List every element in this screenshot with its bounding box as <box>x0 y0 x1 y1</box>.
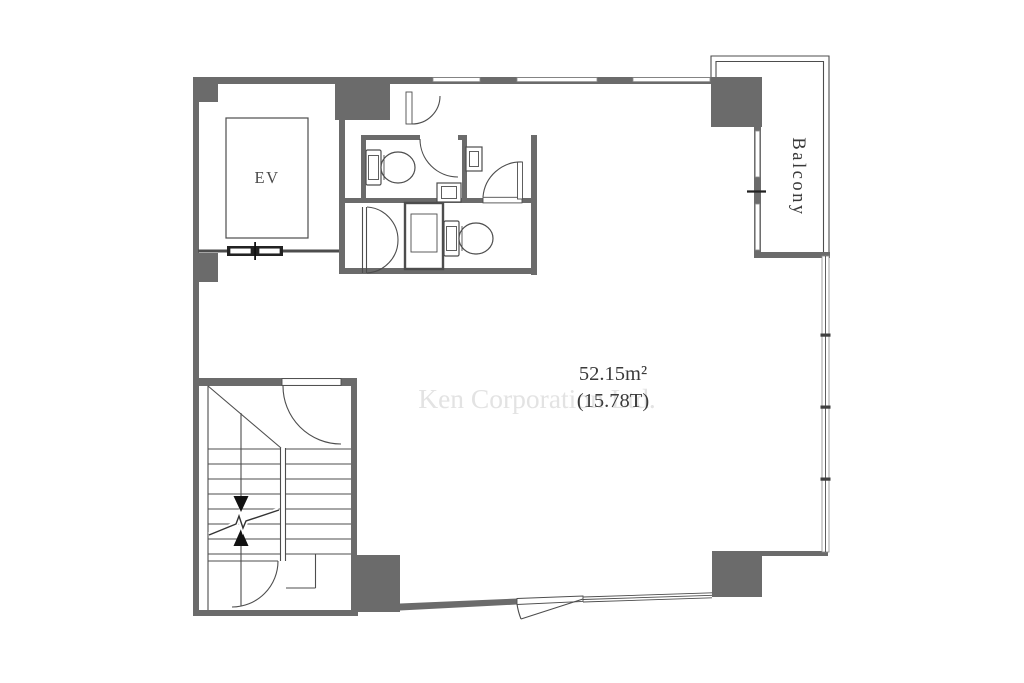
double-door <box>363 207 399 273</box>
column-top-center <box>335 77 390 120</box>
stair-landing-diagonal <box>208 386 281 448</box>
hand-basin-icon <box>437 183 461 202</box>
elevator-door <box>198 242 339 260</box>
entry-door <box>406 92 440 124</box>
bottom-window <box>583 593 712 602</box>
stairs <box>208 379 351 610</box>
wc-upper-room <box>366 139 461 202</box>
stair-treads <box>208 448 351 588</box>
elevator-label: EV <box>255 168 280 187</box>
elevator-room: EV <box>198 118 339 260</box>
wc-upper-door <box>420 139 458 177</box>
sloped-bottom-wall <box>400 599 517 611</box>
column-top-right <box>711 77 762 127</box>
toilet-icon <box>366 150 415 185</box>
column-bottom-left <box>351 555 400 612</box>
stairs-down-arrow-icon <box>234 496 249 512</box>
column-bottom-right <box>712 551 762 597</box>
mullion <box>821 406 831 409</box>
right-window-wall <box>821 256 831 552</box>
wc-lower-room <box>363 203 494 273</box>
mullion <box>821 334 831 337</box>
column-mid-left <box>193 253 218 282</box>
vestibule-door-swing <box>483 162 522 197</box>
entrance-door <box>517 596 583 619</box>
area-sqm-label: 52.15m² <box>579 363 647 385</box>
vestibule-door-leaf <box>483 197 522 203</box>
vestibule-door-open-leaf <box>518 162 523 199</box>
floor-plan-drawing: EV <box>0 0 1024 683</box>
floor-plan-page: EV <box>0 0 1024 683</box>
toilet-icon <box>444 221 493 256</box>
area-tsubo-label: (15.78T) <box>577 390 649 412</box>
top-wall-windows <box>433 78 710 82</box>
storage-cabinet <box>405 203 443 269</box>
stair-top-door <box>282 379 341 444</box>
wall-basin-icon <box>466 147 482 171</box>
column-top-left <box>193 77 218 102</box>
stairs-up-arrow-icon <box>234 529 249 546</box>
elevator-door-center-mark <box>254 242 256 260</box>
balcony-label: Balcony <box>788 137 808 216</box>
stair-bottom-door <box>232 561 278 607</box>
mullion <box>821 478 831 481</box>
